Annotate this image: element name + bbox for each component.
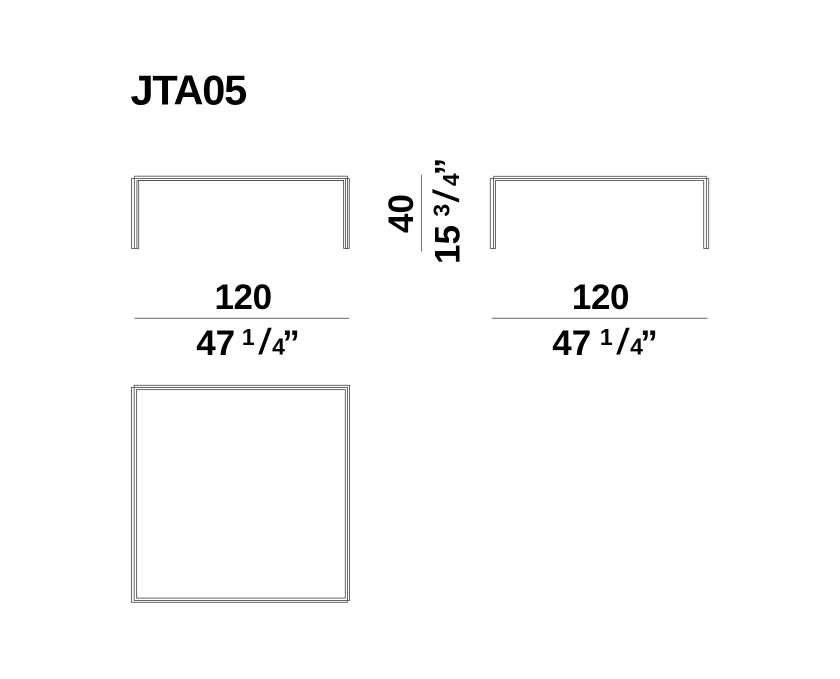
svg-text:”: ”: [282, 324, 300, 363]
svg-text:15: 15: [429, 225, 468, 264]
svg-text:120: 120: [572, 278, 629, 317]
svg-text:”: ”: [640, 324, 658, 363]
svg-text:47: 47: [196, 324, 235, 363]
svg-text:1: 1: [600, 324, 613, 350]
svg-text:40: 40: [382, 194, 421, 233]
svg-text:3: 3: [428, 204, 454, 217]
svg-text:47: 47: [552, 324, 591, 363]
svg-text:1: 1: [242, 324, 255, 350]
svg-text:120: 120: [214, 278, 271, 317]
svg-text:”: ”: [429, 158, 468, 176]
svg-text:JTA05: JTA05: [131, 66, 247, 113]
